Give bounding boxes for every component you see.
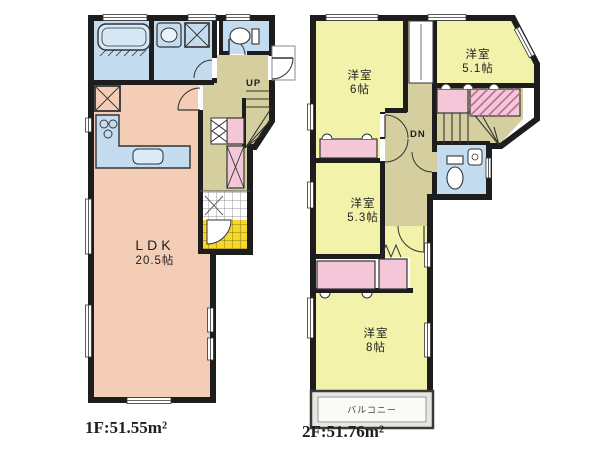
closet-room6	[320, 139, 377, 158]
folding-door-icon	[211, 118, 227, 144]
closet-2f-plain	[437, 89, 468, 113]
room6-size: 6帖	[350, 82, 370, 96]
stairs-up-label: UP	[246, 78, 261, 89]
floor-1f: UP	[85, 15, 295, 438]
entrance-hall-tile	[200, 191, 250, 220]
room6-label: 洋室	[348, 68, 373, 82]
area-label-2f: 2F:51.76m²	[302, 422, 384, 441]
room8-size: 8帖	[366, 340, 386, 354]
shoe-storage-1f	[227, 146, 244, 188]
room53-size: 5.3帖	[347, 210, 379, 224]
ldk-size-label: 20.5帖	[136, 253, 175, 267]
balcony-label: バルコニー	[347, 405, 397, 415]
room51-label: 洋室	[466, 47, 491, 61]
toilet-icon-2f	[447, 156, 463, 189]
closet-room8-narrow	[379, 259, 407, 289]
toilet-icon-1f	[230, 28, 259, 44]
closet-1f	[227, 118, 244, 144]
ldk-label: LDK	[135, 237, 174, 253]
room53-label: 洋室	[351, 196, 376, 210]
room8-label: 洋室	[364, 326, 389, 340]
entrance-porch	[272, 46, 295, 80]
stairs-dn-label: DN	[410, 129, 426, 140]
closet-room53-wide	[317, 261, 375, 289]
room51-size: 5.1帖	[462, 61, 494, 75]
floorplan-image: UP	[0, 0, 600, 449]
hand-basin-icon-2f	[468, 149, 482, 165]
floorplan-canvas: UP	[0, 0, 600, 449]
floor-2f: DN	[302, 15, 537, 442]
closet-2f-hatched	[470, 89, 520, 116]
area-label-1f: 1F:51.55m²	[85, 418, 167, 437]
